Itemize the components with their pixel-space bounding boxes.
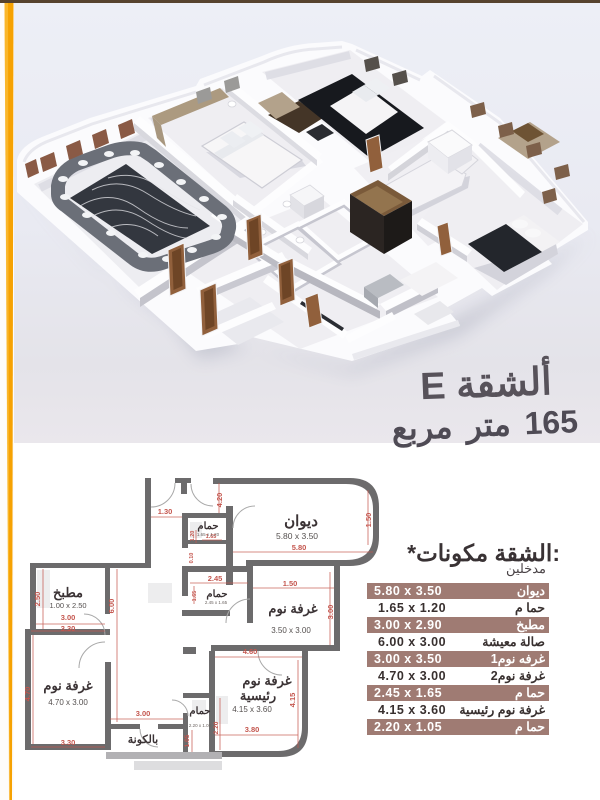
svg-text:4.15: 4.15 <box>288 693 297 708</box>
svg-text:غرفة نوم: غرفة نوم <box>268 601 317 617</box>
svg-text:1.30: 1.30 <box>158 507 173 516</box>
svg-text:مطبخ: مطبخ <box>53 585 83 601</box>
svg-text:2.20 x 1.05: 2.20 x 1.05 <box>189 723 212 728</box>
svg-text:2.50: 2.50 <box>33 592 42 607</box>
svg-text:4.60: 4.60 <box>243 647 258 656</box>
svg-text:1.50: 1.50 <box>364 513 373 528</box>
svg-text:5.80: 5.80 <box>292 543 307 552</box>
svg-text:1.20: 1.20 <box>190 531 196 542</box>
svg-text:3.00: 3.00 <box>136 709 151 718</box>
svg-text:3.50 x 3.00: 3.50 x 3.00 <box>271 626 311 635</box>
svg-text:3.00: 3.00 <box>61 613 76 622</box>
svg-text:2.45 x 1.65: 2.45 x 1.65 <box>205 600 228 605</box>
svg-text:1.50: 1.50 <box>283 579 298 588</box>
svg-text:1.65: 1.65 <box>192 591 198 602</box>
svg-text:غرفة نوم: غرفة نوم <box>242 673 291 689</box>
svg-text:2.45: 2.45 <box>208 574 223 583</box>
svg-text:غرفة نوم: غرفة نوم <box>43 678 92 694</box>
svg-text:0.10: 0.10 <box>189 553 195 564</box>
svg-text:5.80 x 3.50: 5.80 x 3.50 <box>276 531 318 541</box>
svg-text:بالكونة: بالكونة <box>128 734 158 746</box>
svg-text:حمام: حمام <box>189 706 210 717</box>
svg-text:4.70 x 3.00: 4.70 x 3.00 <box>48 698 88 707</box>
svg-text:3.30: 3.30 <box>61 738 76 747</box>
svg-text:3.80: 3.80 <box>245 725 260 734</box>
svg-text:4.15 x 3.60: 4.15 x 3.60 <box>232 705 272 714</box>
svg-text:ديوان: ديوان <box>284 513 318 530</box>
svg-text:3.00: 3.00 <box>326 605 335 620</box>
svg-text:1.00 x 2.50: 1.00 x 2.50 <box>49 601 86 610</box>
svg-text:3.30: 3.30 <box>61 624 76 633</box>
svg-text:1.65 x 1.20: 1.65 x 1.20 <box>197 532 220 537</box>
svg-text:4.70: 4.70 <box>23 687 32 702</box>
svg-text:2.20: 2.20 <box>213 721 220 734</box>
svg-text:حمام: حمام <box>197 521 218 532</box>
svg-text:4.20: 4.20 <box>215 493 224 508</box>
svg-text:رئيسية: رئيسية <box>240 688 276 704</box>
svg-text:حمام: حمام <box>206 589 227 600</box>
svg-text:6.00: 6.00 <box>107 599 116 614</box>
svg-text:1.05: 1.05 <box>184 734 191 747</box>
